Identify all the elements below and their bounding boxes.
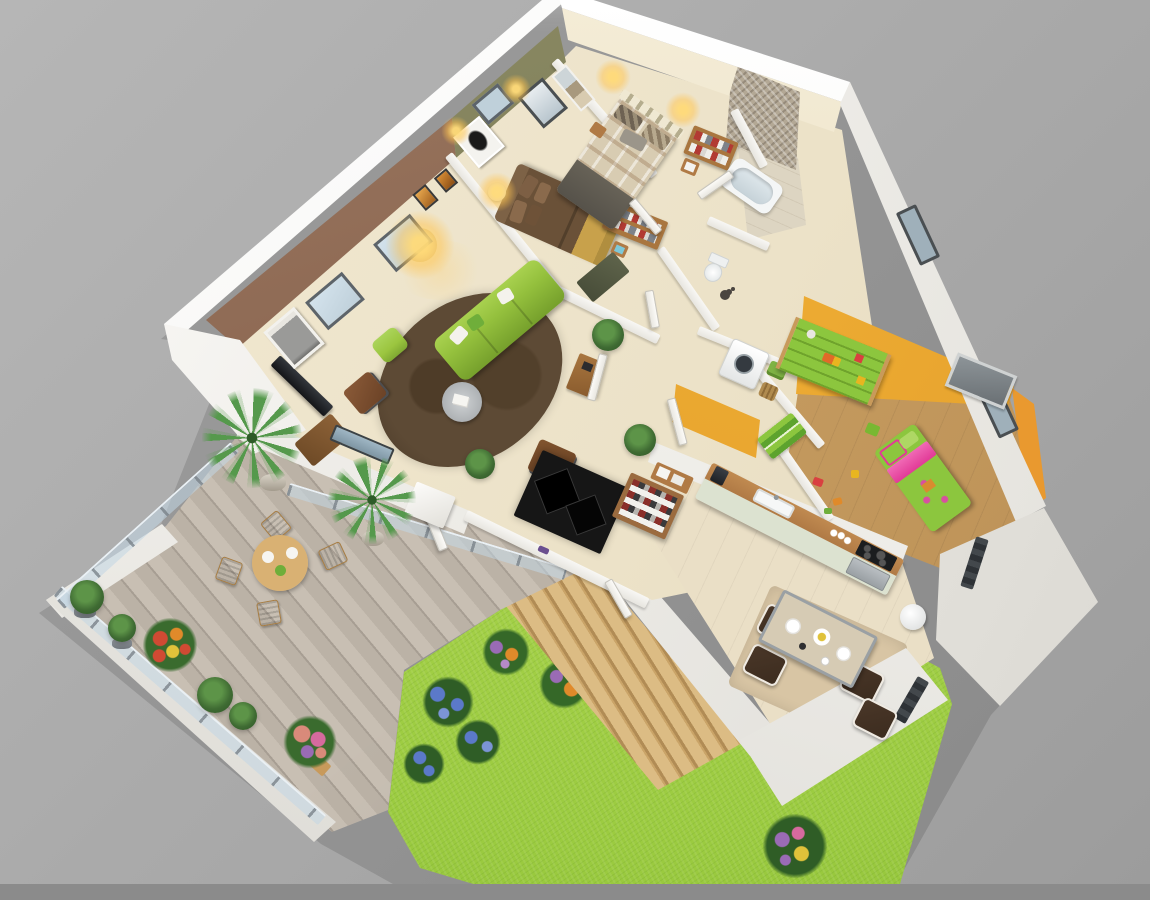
white-towels bbox=[684, 161, 696, 172]
toy-block bbox=[854, 353, 864, 363]
boxwood-bush bbox=[70, 580, 104, 614]
table-plate bbox=[286, 547, 298, 559]
backdrop-floor-line bbox=[0, 884, 1150, 900]
dark-plant bbox=[197, 677, 233, 713]
boxwood-bush bbox=[108, 614, 136, 642]
round-coffee-table bbox=[442, 382, 482, 422]
bed1-pillow bbox=[524, 204, 543, 227]
potted-plant bbox=[465, 449, 495, 479]
white-box bbox=[670, 473, 685, 486]
teddy-toy bbox=[805, 328, 817, 340]
dark-plant bbox=[229, 702, 257, 730]
decor-object bbox=[581, 361, 593, 372]
drum-lamp bbox=[488, 183, 506, 201]
red-flower-pot bbox=[143, 618, 197, 672]
magazines bbox=[452, 393, 469, 406]
floor-plan-scene bbox=[0, 0, 1150, 900]
shower-fixture bbox=[720, 290, 730, 300]
table-plate bbox=[262, 551, 274, 563]
pink-flower-bush bbox=[283, 715, 337, 769]
cup bbox=[819, 655, 831, 667]
table-centerpiece bbox=[275, 565, 286, 576]
floor-toy bbox=[851, 470, 859, 478]
purple-yellow-bed bbox=[763, 814, 827, 878]
blue-books bbox=[614, 244, 625, 254]
toy-truck bbox=[822, 352, 842, 367]
purple-orange-bed bbox=[482, 628, 530, 676]
terrace-chair bbox=[256, 599, 282, 626]
trash-bin bbox=[900, 604, 926, 630]
cup bbox=[798, 642, 807, 651]
blue-flower-bed bbox=[403, 743, 445, 785]
blue-flower-bed bbox=[455, 719, 501, 765]
sofa-pillow-white bbox=[448, 325, 469, 346]
living-light-pool bbox=[395, 240, 485, 300]
blue-flower-bed bbox=[422, 676, 474, 728]
sofa-pillow-green bbox=[466, 313, 486, 332]
potted-plant bbox=[624, 424, 656, 456]
floor-toy bbox=[824, 508, 832, 514]
white-box bbox=[656, 466, 671, 480]
potted-plant bbox=[592, 319, 624, 351]
toy-block bbox=[856, 375, 866, 385]
terrace-round-table bbox=[252, 535, 308, 591]
plate bbox=[782, 616, 804, 638]
plate bbox=[834, 644, 854, 664]
fox-plush bbox=[921, 479, 936, 493]
washer-door bbox=[731, 351, 757, 377]
plate-with-food bbox=[810, 626, 833, 649]
